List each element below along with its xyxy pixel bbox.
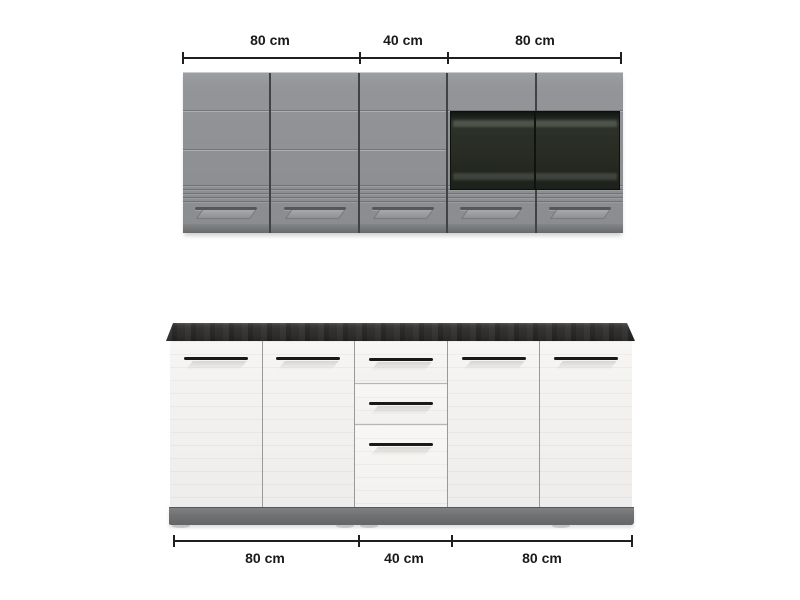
drawer-handle: [369, 402, 433, 415]
drawer-handle: [369, 443, 433, 456]
dimension-label: 80 cm: [250, 32, 290, 48]
door-lamella-stripes: [271, 185, 357, 204]
dimension-line: [173, 540, 633, 542]
drawer: [355, 383, 447, 424]
base-door-handle: [276, 357, 340, 370]
wall-cabinet-door: [271, 73, 357, 233]
door-groove: [183, 110, 269, 111]
glass-panel: [450, 111, 620, 190]
door-bottom-shade: [271, 224, 357, 233]
door-groove: [360, 149, 446, 150]
door-lamella-stripes: [183, 185, 269, 204]
foot-shadow: [552, 524, 570, 528]
door-bottom-shade: [360, 224, 446, 233]
dimension-tick: [631, 535, 633, 547]
drawer: [355, 341, 447, 383]
foot-shadow: [336, 524, 354, 528]
base-cabinet-row: [170, 341, 632, 507]
door-groove: [271, 110, 357, 111]
wall-door-handle: [195, 207, 257, 219]
dimension-label: 80 cm: [245, 550, 285, 566]
dimension-label: 40 cm: [384, 550, 424, 566]
dimension-tick: [359, 52, 361, 64]
wall-cabinet-door: [360, 73, 446, 233]
dimension-tick: [173, 535, 175, 547]
wall-cabinet-row: [183, 72, 623, 233]
drawer-handle: [369, 358, 433, 371]
dimension-line: [182, 57, 622, 59]
base-door-handle: [184, 357, 248, 370]
base-cabinet-door: [540, 341, 632, 507]
glass-door-divider: [534, 112, 536, 189]
foot-shadow: [360, 524, 378, 528]
drawer-cabinet: [355, 341, 447, 507]
dimension-label: 80 cm: [515, 32, 555, 48]
door-groove: [360, 110, 446, 111]
wall-door-handle: [372, 207, 434, 219]
wall-door-handle: [284, 207, 346, 219]
door-bottom-shade: [448, 224, 534, 233]
door-bottom-shade: [183, 224, 269, 233]
wall-door-handle: [460, 207, 522, 219]
dimension-tick: [620, 52, 622, 64]
base-cabinet-door: [170, 341, 262, 507]
dimension-annotation-bottom: 80 cm 40 cm 80 cm: [173, 535, 633, 549]
dimension-tick: [451, 535, 453, 547]
drawer: [355, 424, 447, 507]
plinth: [169, 507, 634, 525]
foot-shadow: [172, 524, 190, 528]
wall-cabinet-door: [183, 73, 269, 233]
dimension-label: 80 cm: [522, 550, 562, 566]
kitchen-set-product-image: 80 cm 40 cm 80 cm: [0, 0, 800, 600]
door-groove: [271, 149, 357, 150]
door-bottom-shade: [537, 224, 623, 233]
base-cabinet-door: [448, 341, 540, 507]
base-door-handle: [554, 357, 618, 370]
dimension-tick: [182, 52, 184, 64]
door-lamella-stripes: [360, 185, 446, 204]
wall-door-handle: [549, 207, 611, 219]
dimension-tick: [358, 535, 360, 547]
dimension-tick: [447, 52, 449, 64]
base-cabinet-door: [263, 341, 355, 507]
dimension-label: 40 cm: [383, 32, 423, 48]
countertop: [166, 323, 635, 341]
dimension-annotation-top: 80 cm 40 cm 80 cm: [182, 52, 622, 66]
door-groove: [183, 149, 269, 150]
base-door-handle: [462, 357, 526, 370]
